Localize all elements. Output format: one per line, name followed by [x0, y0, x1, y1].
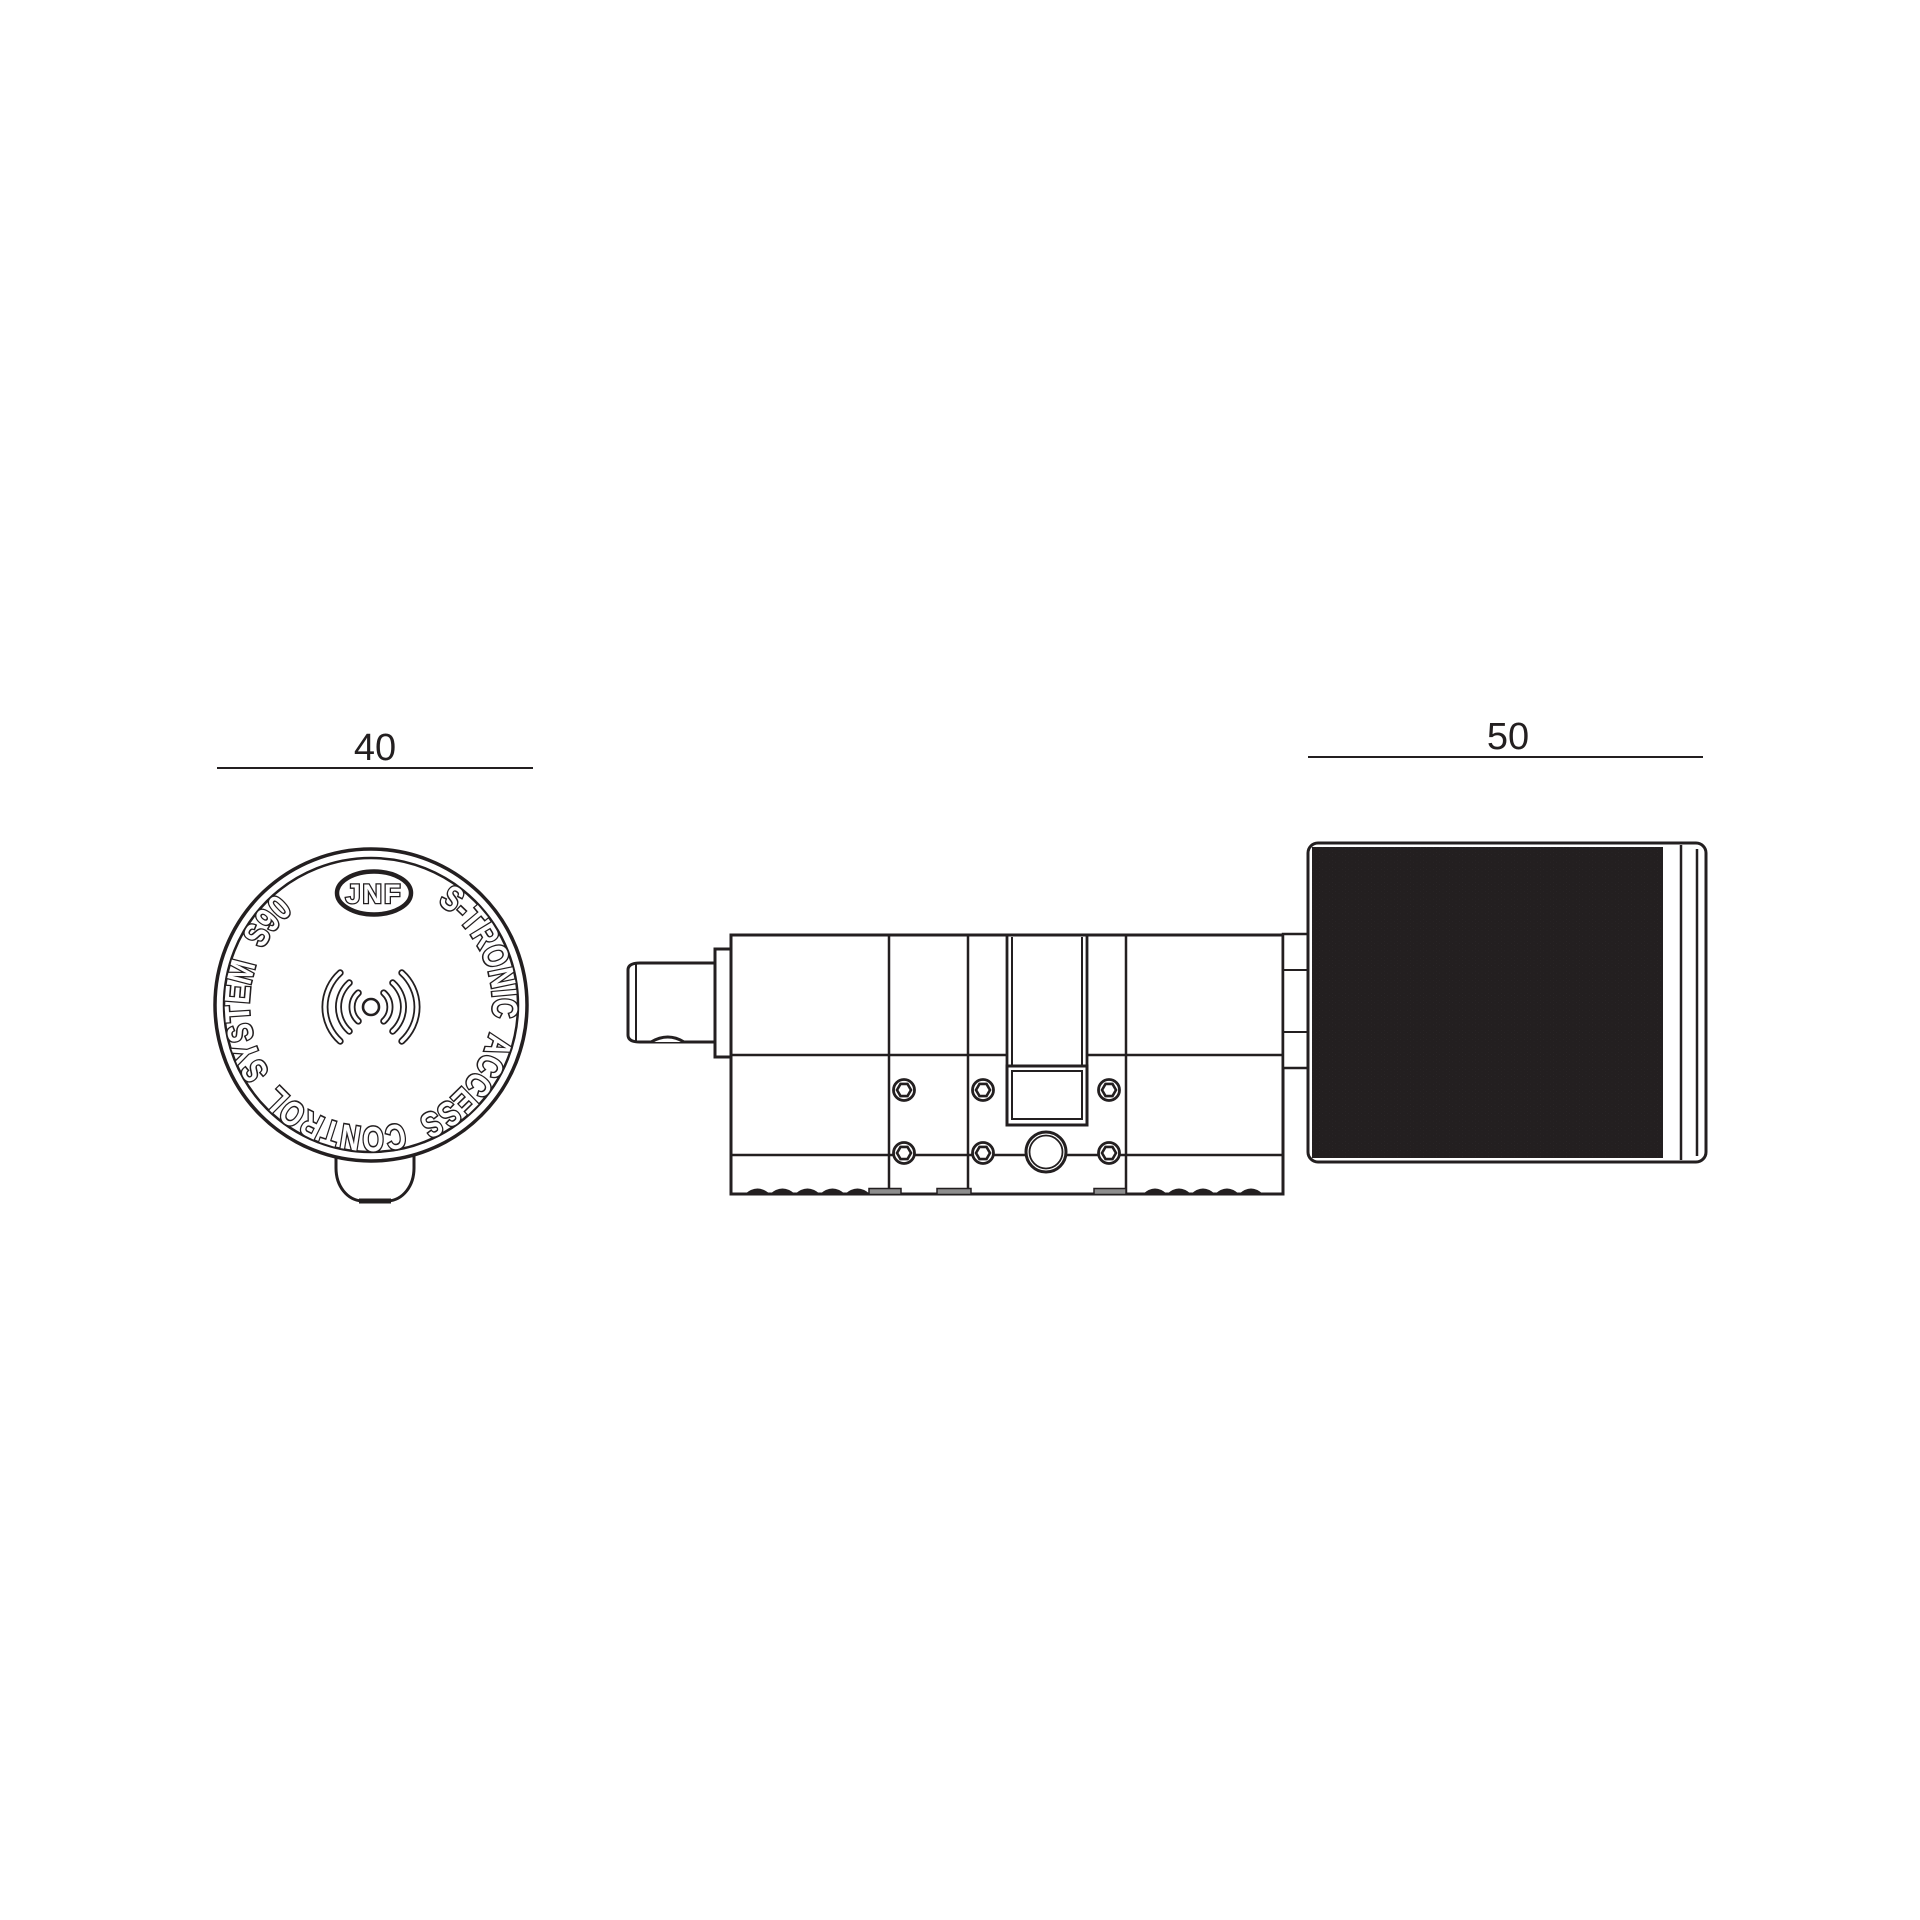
technical-drawing-canvas: JNF S-TRONIC ACCESS CONTROL SYSTEM S90 [0, 0, 1920, 1920]
bottom-recess [1094, 1189, 1126, 1195]
spindle-shaft [628, 963, 715, 1042]
hex-screw [1099, 1080, 1120, 1101]
cylinder-side-view [628, 843, 1706, 1195]
brand-logo: JNF [337, 872, 411, 915]
hex-screw [973, 1080, 994, 1101]
bottom-recess [937, 1189, 971, 1195]
fixing-hole [1026, 1132, 1066, 1172]
spindle-collar [715, 949, 731, 1057]
knob-neck [1283, 934, 1308, 1068]
hex-screw [894, 1080, 915, 1101]
dimension-value: 50 [1487, 716, 1529, 758]
face-view: JNF S-TRONIC ACCESS CONTROL SYSTEM S90 [215, 849, 527, 1201]
knurl-texture [1312, 847, 1663, 1158]
brand-logo-text: JNF [345, 879, 402, 909]
hex-screw [1099, 1143, 1120, 1164]
bottom-recess [869, 1189, 901, 1195]
hex-screw [973, 1143, 994, 1164]
dimension-face-diameter: 40 [217, 727, 533, 769]
cam-window [1007, 1066, 1087, 1125]
hex-screw [894, 1143, 915, 1164]
dimension-knob-length: 50 [1308, 716, 1703, 758]
dimension-value: 40 [354, 727, 396, 769]
knurled-knob [1308, 843, 1706, 1162]
